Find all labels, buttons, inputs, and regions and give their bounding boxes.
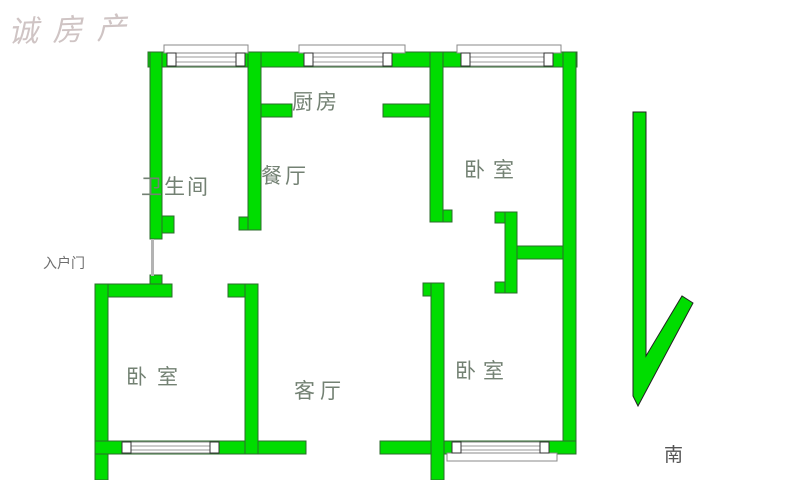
wall-dining-foot	[239, 217, 248, 230]
wall-bedroom-br-left-foot	[423, 283, 431, 296]
wall-kitchen-right-foot	[443, 210, 452, 222]
room-label-bedroom-top-right: 卧室	[464, 160, 522, 181]
watermark-logo: 诚房产	[7, 3, 140, 52]
wall-right-outer	[563, 52, 576, 453]
wall-kitchen-stub-right	[383, 104, 430, 117]
south-arrow-icon	[633, 112, 693, 406]
room-label-kitchen: 厨房	[292, 92, 340, 113]
room-label-bedroom-bottom-left: 卧室	[126, 367, 188, 388]
walls	[95, 52, 577, 480]
wall-bathroom-tab	[162, 216, 174, 233]
window-top-3	[457, 45, 561, 66]
wall-bedroom-tr-bottom	[517, 246, 563, 259]
window-bottom-right	[447, 442, 557, 461]
room-label-dining: 餐厅	[261, 166, 309, 187]
wall-hall-bracket-vertical	[505, 212, 517, 293]
wall-left-upper	[150, 52, 162, 239]
wall-hall-bracket-top-foot	[495, 212, 505, 223]
wall-bedroom-bl-right	[245, 284, 258, 454]
window-bottom-left	[122, 442, 219, 453]
wall-hall-bracket-bottom-foot	[495, 282, 505, 293]
floorplan-screenshot: 诚房产 厨房 餐厅 卫生间 卧室 卧室 客厅 卧室 入户门 南	[0, 0, 800, 480]
room-label-bathroom: 卫生间	[141, 177, 210, 198]
wall-bedroom-br-left	[431, 283, 444, 480]
south-compass-label: 南	[664, 440, 683, 467]
room-label-bedroom-bottom-right: 卧室	[455, 361, 511, 382]
wall-bedroom-bl-door-foot	[228, 284, 245, 297]
entrance-door-label: 入户门	[43, 258, 85, 272]
room-label-living-room: 客厅	[294, 381, 346, 402]
wall-kitchen-stub-left	[261, 104, 292, 117]
window-top-1	[164, 45, 248, 66]
entrance-door-line	[151, 239, 154, 276]
floorplan-canvas	[0, 0, 800, 480]
wall-kitchen-right	[430, 52, 443, 222]
wall-dining-vertical	[248, 52, 261, 230]
window-top-2	[299, 45, 405, 66]
